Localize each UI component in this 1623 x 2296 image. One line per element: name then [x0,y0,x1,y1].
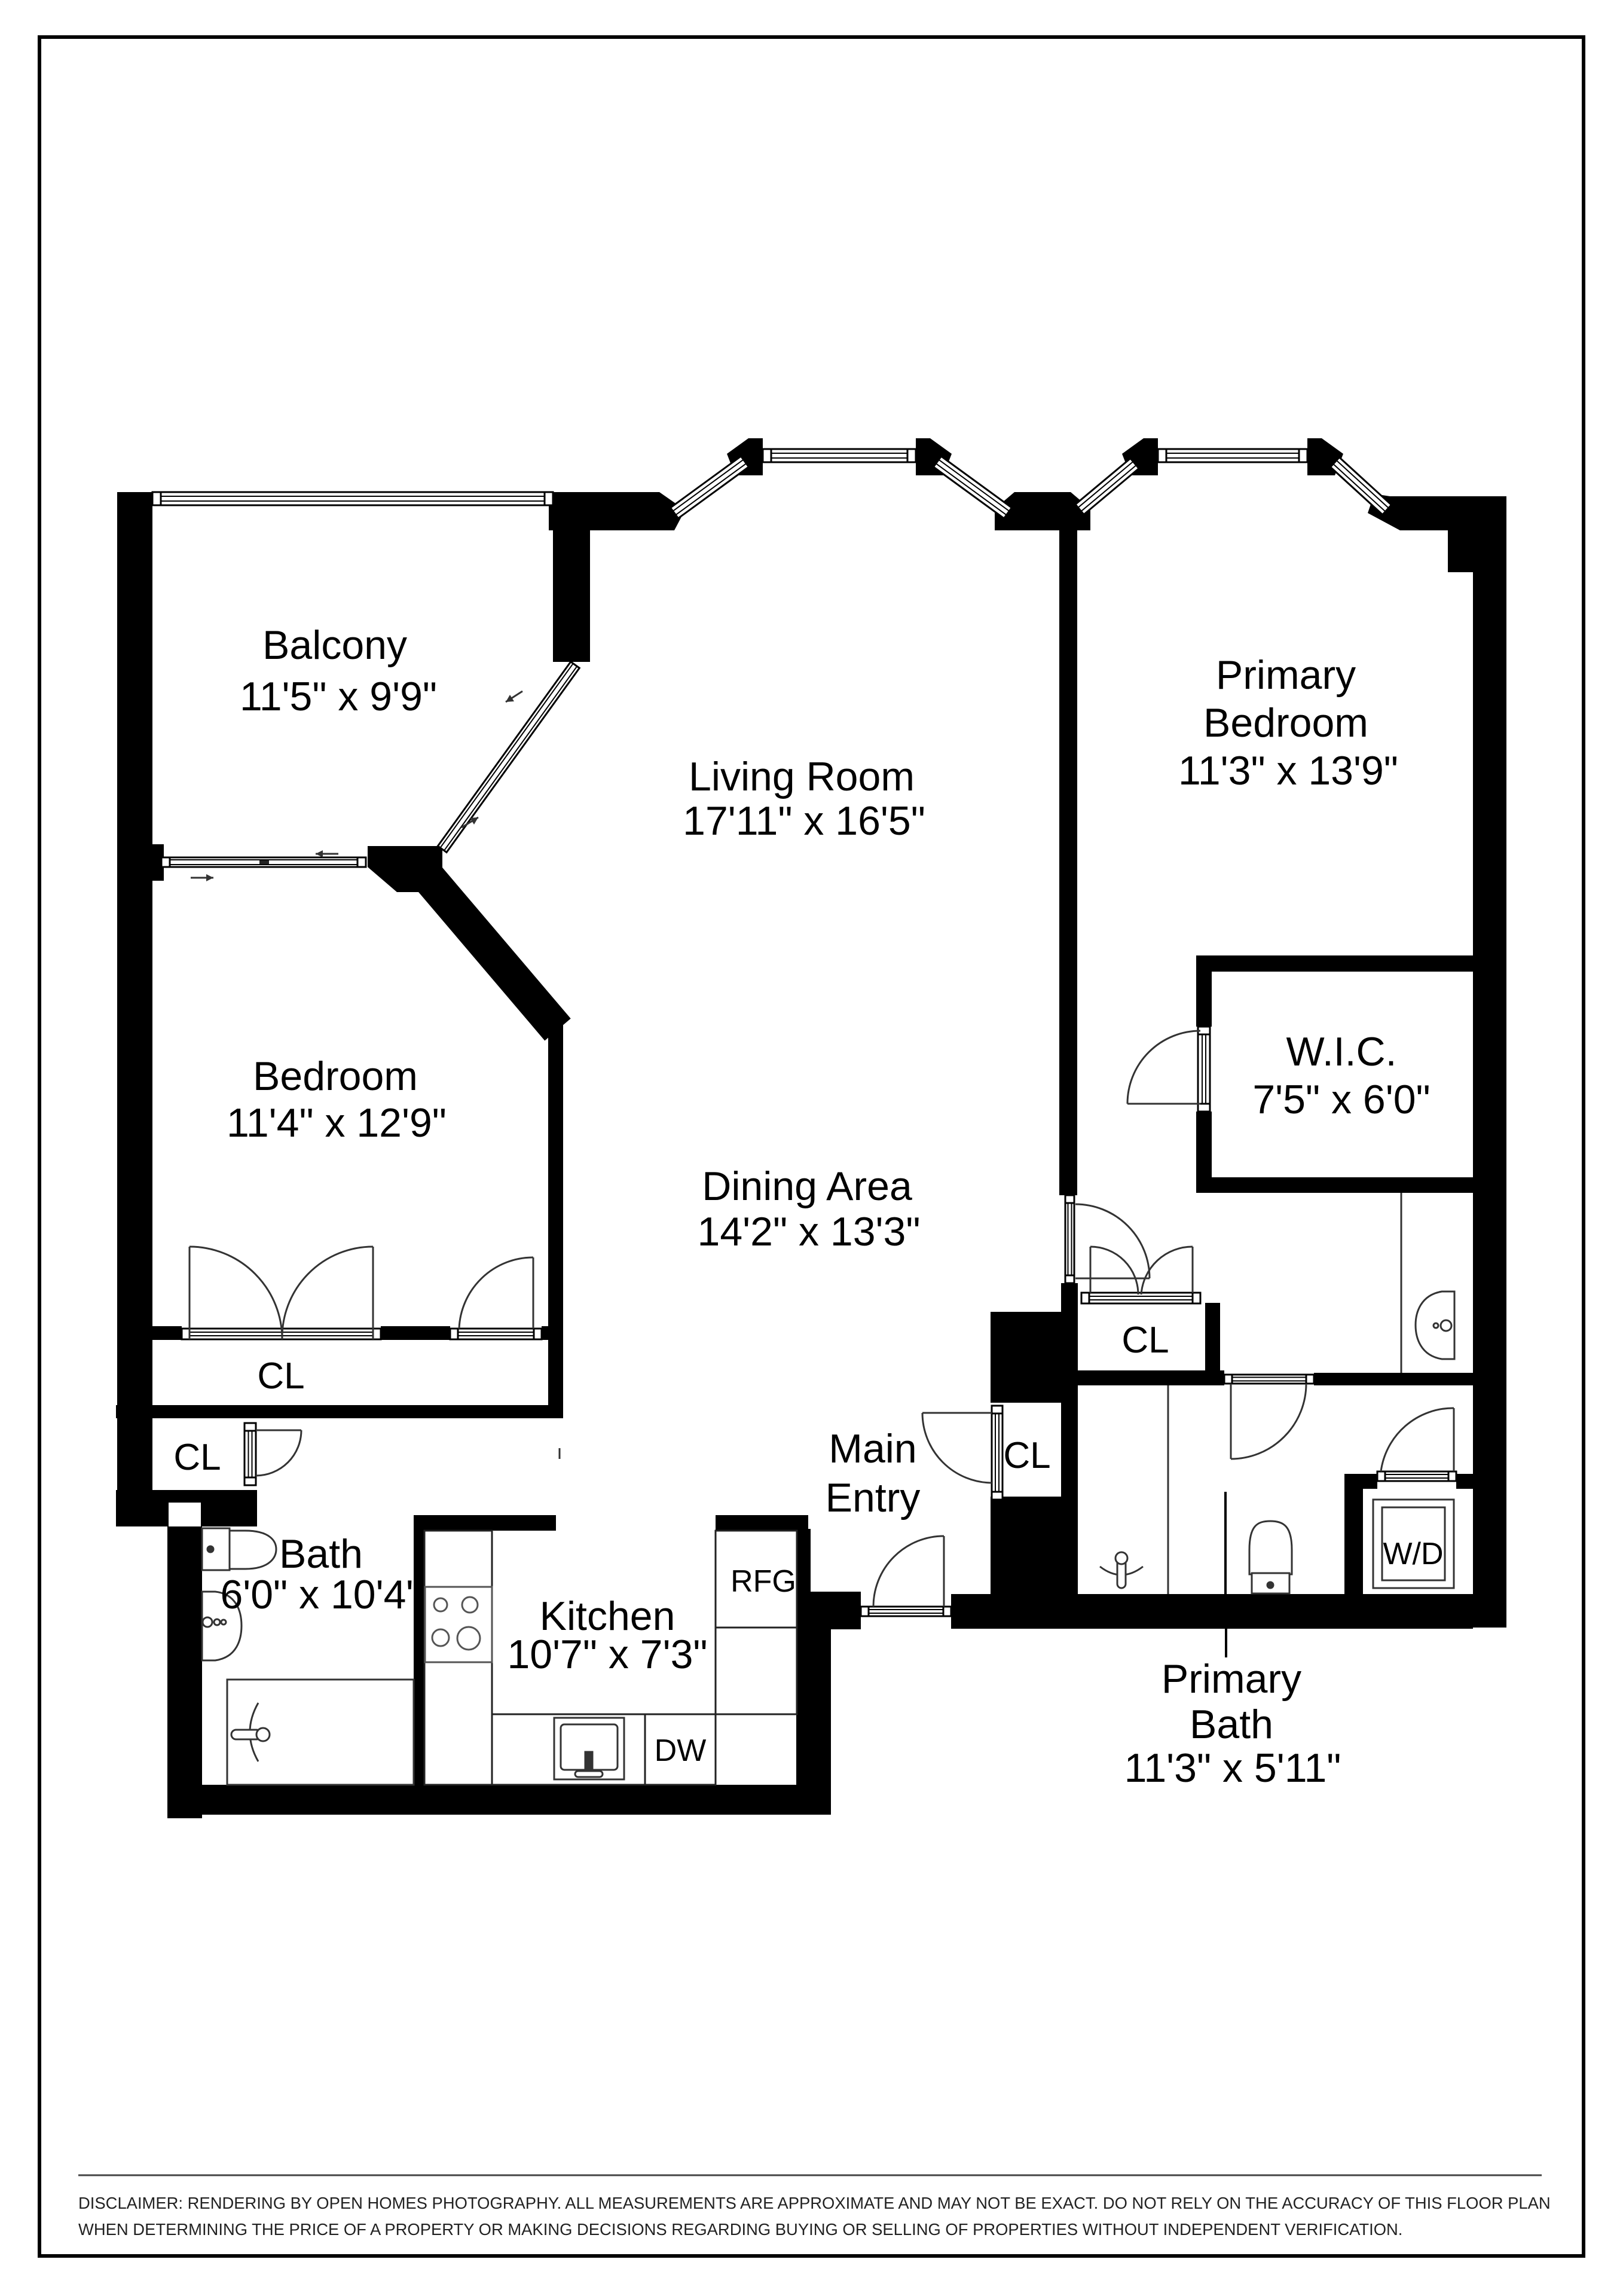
svg-text:11'4" x 12'9": 11'4" x 12'9" [227,1100,447,1146]
svg-text:RFG: RFG [730,1564,796,1599]
svg-text:Living Room: Living Room [689,754,915,799]
svg-text:Bath: Bath [1190,1702,1273,1747]
svg-text:10'7" x 7'3": 10'7" x 7'3" [507,1632,707,1677]
svg-text:6'0" x 10'4": 6'0" x 10'4" [220,1572,420,1617]
svg-text:W.I.C.: W.I.C. [1286,1029,1396,1074]
svg-text:Main: Main [829,1426,916,1471]
svg-text:Primary: Primary [1162,1656,1301,1702]
svg-text:W/D: W/D [1383,1537,1443,1571]
svg-text:DW: DW [655,1733,707,1768]
svg-text:Balcony: Balcony [262,622,407,668]
svg-text:Primary: Primary [1216,652,1356,698]
svg-text:14'2" x 13'3": 14'2" x 13'3" [698,1209,921,1254]
svg-text:CL: CL [1003,1435,1050,1476]
svg-text:DISCLAIMER: RENDERING BY OPEN: DISCLAIMER: RENDERING BY OPEN HOMES PHOT… [78,2194,1551,2212]
svg-text:11'3" x 5'11": 11'3" x 5'11" [1124,1745,1341,1791]
svg-text:7'5" x 6'0": 7'5" x 6'0" [1252,1077,1430,1122]
svg-text:CL: CL [173,1437,221,1478]
svg-text:11'5" x 9'9": 11'5" x 9'9" [240,674,437,719]
svg-text:Entry: Entry [826,1475,921,1521]
svg-text:Bedroom: Bedroom [1203,700,1368,746]
svg-text:CL: CL [257,1355,304,1397]
svg-text:17'11" x 16'5": 17'11" x 16'5" [683,798,925,844]
svg-text:WHEN DETERMINING THE PRICE OF: WHEN DETERMINING THE PRICE OF A PROPERTY… [78,2220,1402,2239]
svg-text:Bath: Bath [279,1531,363,1577]
svg-text:CL: CL [1121,1320,1169,1361]
svg-text:11'3" x 13'9": 11'3" x 13'9" [1178,748,1398,793]
svg-text:Dining Area: Dining Area [702,1164,912,1209]
svg-text:Bedroom: Bedroom [253,1054,418,1099]
